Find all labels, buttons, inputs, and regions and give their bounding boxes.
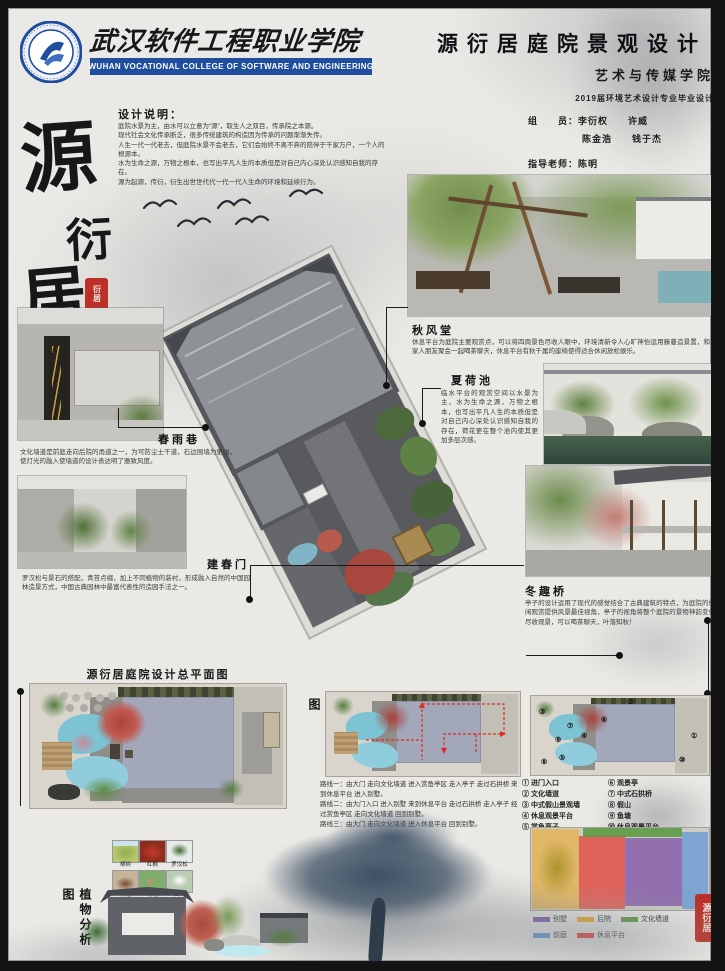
feature-label-jianchunmen: 建春门 [207, 556, 249, 572]
poster-frame: 武汉软件工程职业学院 WUHAN VOCATIONAL COLLEGE OF S… [0, 0, 725, 971]
plant [110, 510, 152, 552]
legend-item: ⑨ 鱼塘 [608, 811, 659, 822]
note-line: 庭院水景为主，由水可以立意为“源”，取生人之双目，传承院之本源。 [118, 122, 390, 131]
note-line: 水为生命之源，万物之根本，也写出平凡人生的本质但是对自己内心深处认识感知自我的存… [118, 159, 390, 178]
leader-dot-right-top [704, 617, 711, 624]
poster: 武汉软件工程职业学院 WUHAN VOCATIONAL COLLEGE OF S… [8, 8, 711, 961]
leader-dot-dong-under [616, 652, 623, 659]
leader-line-chunyuxiang [118, 408, 119, 428]
plan-mark: ② [627, 698, 633, 706]
green-tree [40, 692, 68, 718]
plan-mark: ③ [539, 708, 545, 716]
plant-cell: 柳树 [113, 841, 138, 869]
team-row1: 组 员：李衍权 许威 [528, 114, 711, 127]
plaque-gold-script [52, 346, 61, 420]
leader-line-dong-under [526, 655, 620, 656]
green-tree [82, 776, 126, 804]
calligraphy-yuan: 源 [16, 93, 99, 208]
team-members-1: 李衍权 许威 [578, 116, 648, 126]
plant-photo-red-maple [140, 841, 165, 862]
wall-roofline [544, 370, 711, 374]
leader-line-left-edge [20, 691, 21, 806]
leader-dot-chunyuxiang [202, 424, 209, 431]
legend-item: ③ 中式假山景观墙 [522, 800, 580, 811]
railing [622, 526, 711, 533]
pavilion-table [125, 750, 133, 758]
plan-legend-col2: ⑥ 观景亭 ⑦ 中式石拱桥 ⑧ 假山 ⑨ 鱼塘 ⑩ 休息观景平台 [608, 778, 659, 833]
entry-deck [263, 712, 280, 748]
route-arrows [326, 692, 520, 776]
leader-dot-xiahechi [419, 420, 426, 427]
leader-line-xiahechi [422, 388, 441, 389]
route-plan-image [326, 692, 520, 776]
pond-edge [658, 271, 711, 303]
photo-chunyuxiang [18, 308, 163, 440]
plan-mark: ⑥ [601, 716, 607, 724]
program-line: 2019届环境艺术设计专业毕业设计 [438, 93, 711, 104]
leader-line-jianchunmen [250, 565, 251, 599]
bonsai-tree [80, 917, 114, 947]
legend-item: ④ 休息观景平台 [522, 811, 580, 822]
feature-desc-xiahechi: 临水平台的观赏空间以水景为主，水为生命之源，万物之根本，也写出平凡人生的本质但是… [441, 389, 538, 445]
plant-photo-willow [113, 841, 138, 862]
ink-tree-canopy [328, 808, 458, 868]
house-window-band [122, 913, 174, 935]
advisor-name: 陈明 [578, 159, 598, 169]
feature-desc-dongquqiao: 亭子的设计运用了现代的感觉结合了古典建筑的特点，为庭院的休闲观赏提供风景最佳视角… [525, 599, 711, 627]
legend-item: ① 进门入口 [522, 778, 580, 789]
dark-rocks [48, 784, 80, 800]
rocks [204, 939, 224, 951]
paving [122, 789, 234, 803]
leader-line-xiahechi [422, 388, 423, 424]
note-line: 人生一代一代老去，但庭院水景不会老去，它们会始终不离不弃的陪伴于千家万户，一个人… [118, 141, 390, 160]
sky [18, 308, 163, 324]
leader-line-qiufengtang [386, 307, 408, 308]
plan-mark: ⑤ [559, 754, 565, 762]
plant-label: 罗汉松 [167, 862, 192, 869]
photo-xiahechi [544, 364, 711, 464]
plant-cell: 红枫 [140, 841, 165, 869]
master-plan-title: 源衍居庭院设计总平面图 [38, 666, 278, 682]
paving [526, 550, 711, 576]
plan-mark: ⑦ [567, 722, 573, 730]
red-maple [96, 700, 146, 746]
leader-dot-left-edge [17, 688, 24, 695]
bench [416, 271, 490, 289]
advisor-row: 指导老师：陈明 [528, 157, 711, 170]
college-name-cn: 武汉软件工程职业学院 [88, 21, 392, 58]
sky [18, 476, 186, 489]
photo-dongquqiao [526, 466, 711, 576]
feature-desc-jianchunmen: 罗汉松与景石的搭配，青苔点缀，加上不同植物的装衬，形成融入自然的中国园林造景方式… [22, 574, 250, 593]
plan-legend-col1: ① 进门入口 ② 文化墙道 ③ 中式假山景观墙 ④ 休息观景平台 ⑤ 赏鱼亭子 [522, 778, 580, 833]
numbered-plan-image: ① ② ③ ④ ⑤ ⑥ ⑦ ⑧ ⑨ ⑩ [531, 696, 709, 775]
design-note-body: 庭院水景为主，由水可以立意为“源”，取生人之双目，传承院之本源。 现代社会文化传… [118, 122, 390, 187]
wood-post [694, 500, 697, 550]
photo-qiufengtang [408, 175, 711, 316]
willow-tree [210, 895, 246, 939]
college-name-en: WUHAN VOCATIONAL COLLEGE OF SOFTWARE AND… [88, 62, 373, 71]
leader-line-qiufengtang [386, 307, 387, 386]
team-label: 组 员： [528, 116, 578, 126]
zone-culture-wall [583, 828, 682, 837]
leader-dot-qiufengtang [383, 382, 390, 389]
legend-item: ② 文化墙道 [522, 789, 580, 800]
college-name-bar: WUHAN VOCATIONAL COLLEGE OF SOFTWARE AND… [90, 58, 372, 75]
green-tree [218, 778, 244, 800]
legend-item: ⑥ 观景亭 [608, 778, 659, 789]
leader-line-chunyuxiang [118, 427, 206, 428]
plant-photo-podocarpus [167, 841, 192, 862]
design-note-title: 设计说明： [118, 106, 183, 122]
plan-mark: ① [691, 732, 697, 740]
feature-label-dongquqiao: 冬趣桥 [525, 583, 567, 599]
note-line: 现代社会文化传承断乏，很多传统建筑的构造因为传承的问题渐渐失传。 [118, 131, 390, 140]
hedge-strip [118, 687, 236, 697]
advisor-label: 指导老师： [528, 159, 578, 169]
wood-post [662, 500, 665, 550]
leader-line-right-edge [708, 620, 709, 694]
plan-mark: ⑨ [555, 736, 561, 744]
pink-tree [578, 486, 652, 548]
feature-desc-chunyuxiang: 文化墙道是前庭走向后院的甬道之一，为可防尘土干道，石边围墙为更幽，使灯光的融入使… [20, 448, 236, 467]
pond-water [544, 436, 711, 464]
leader-dot-jianchunmen [246, 596, 253, 603]
team-members-2: 陈金浩 钱于杰 [582, 132, 711, 145]
tea-table [558, 277, 620, 293]
route-line-1: 路线一：由大门 走向文化墙道 进入赏鱼亭区 走入亭子 走过石拱桥 来到休息平台 … [320, 780, 522, 799]
wood-deck [42, 742, 72, 770]
photo-jianchunmen [18, 476, 186, 568]
master-plan-image [30, 684, 286, 808]
team-credits: 组 员：李衍权 许威 陈金浩 钱于杰 指导老师：陈明 [528, 114, 711, 170]
plan-mark: ⑧ [541, 758, 547, 766]
feature-label-chunyuxiang: 春雨巷 [158, 431, 200, 447]
feature-desc-qiufengtang: 休息平台为庭院主要观赏点，可以将四周景色尽收人眼中，环境清新令人心旷神怡运用藤蔓… [412, 338, 710, 357]
path-floor [18, 420, 163, 440]
plant-label: 柳树 [113, 862, 138, 869]
pink-tree [70, 732, 96, 754]
path-floor [18, 552, 186, 568]
feature-label-qiufengtang: 秋风堂 [412, 322, 454, 338]
college-logo [20, 21, 82, 83]
plant-label: 红枫 [140, 862, 165, 869]
white-building [636, 197, 711, 259]
calligraphy-seal-stamp: 衍居 [85, 278, 108, 310]
plan-mark: ⑩ [679, 756, 685, 764]
legend-item: ⑧ 假山 [608, 800, 659, 811]
pavilion-table [110, 744, 120, 759]
feature-label-xiahechi: 夏荷池 [451, 372, 493, 388]
leader-line-jianchunmen [250, 565, 524, 566]
elevation-render [78, 883, 308, 961]
podocarpus-plant [56, 502, 110, 552]
plan-mark: ④ [581, 732, 587, 740]
poster-title: 源衍居庭院景观设计 [428, 28, 711, 58]
department-name: 艺术与传媒学院 [438, 65, 711, 84]
plant-cell: 罗汉松 [167, 841, 192, 869]
wood-post [630, 500, 633, 550]
legend-item: ⑦ 中式石拱桥 [608, 789, 659, 800]
wall-plants [264, 927, 302, 947]
